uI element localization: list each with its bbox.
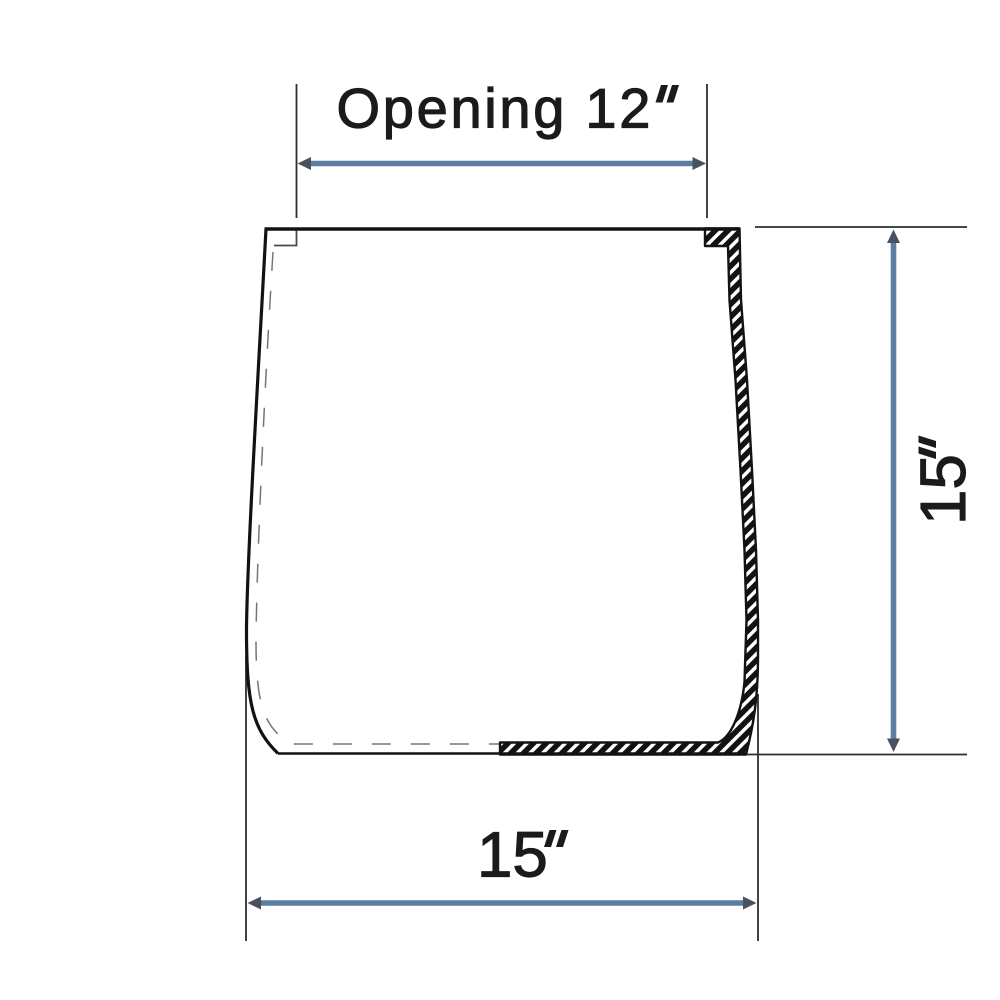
svg-text:15: 15 [477,820,548,891]
svg-text:Opening 12: Opening 12 [337,76,654,139]
svg-text:15: 15 [908,454,979,525]
